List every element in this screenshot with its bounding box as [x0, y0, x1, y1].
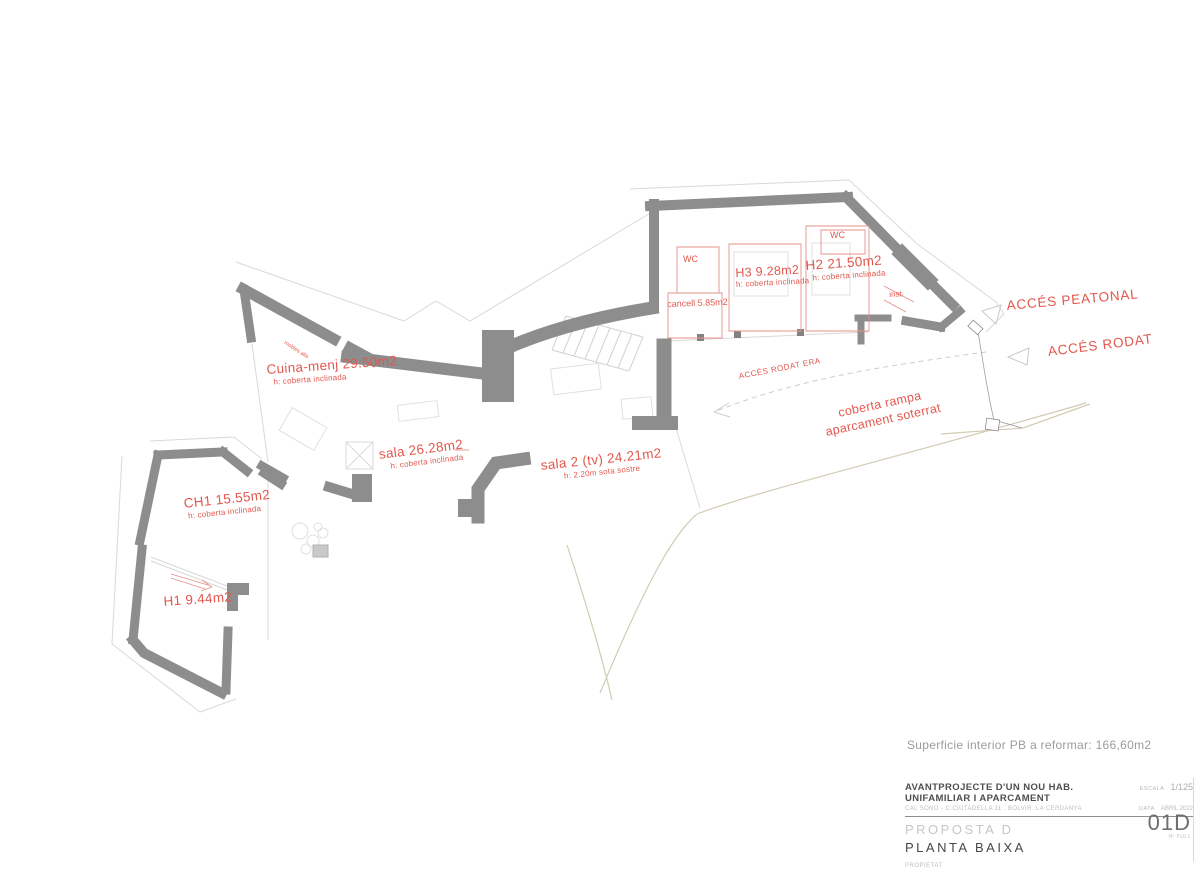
scale-label: ESCALA [1140, 786, 1165, 792]
era-arrow-icon [714, 403, 730, 417]
surface-summary: Superficie interior PB a reformar: 166,6… [907, 738, 1151, 752]
sheet-number-sub: Nº FULL [1168, 834, 1191, 840]
room-label-cancell: cancell 5.85m2 [667, 297, 728, 309]
arrow-peatonal-icon [982, 305, 1001, 324]
hatched-box [313, 545, 328, 557]
titleblock-border [1193, 778, 1194, 862]
project-title: AVANTPROJECTE D'UN NOU HAB. UNIFAMILIAR … [905, 782, 1140, 804]
access-arrows [982, 305, 1029, 365]
room-label-h3: H3 9.28m2 h: coberta inclinada [735, 262, 810, 289]
sheet-title: PLANTA BAIXA [905, 840, 1193, 855]
fence-gate [968, 320, 1022, 431]
room-label-inst: inst. [889, 289, 904, 299]
room-label-wc-left: WC [683, 254, 698, 264]
room-label-wc-right: WC [830, 230, 845, 240]
owner-label: PROPIETAT [905, 863, 1193, 869]
titleblock: AVANTPROJECTE D'UN NOU HAB. UNIFAMILIAR … [905, 782, 1193, 869]
arrow-rodat-icon [1008, 348, 1029, 365]
drawing-sheet: mobles alts Cuina-menj 29.50m2 h: cobert… [0, 0, 1200, 880]
scale-value: 1/125 [1170, 782, 1193, 792]
project-address: CAL SONO - C.CIUTADELLA 11 . BOLVIR. LA … [905, 806, 1139, 812]
sheet-number: 01D [1148, 810, 1191, 836]
furniture-layer [279, 243, 850, 554]
